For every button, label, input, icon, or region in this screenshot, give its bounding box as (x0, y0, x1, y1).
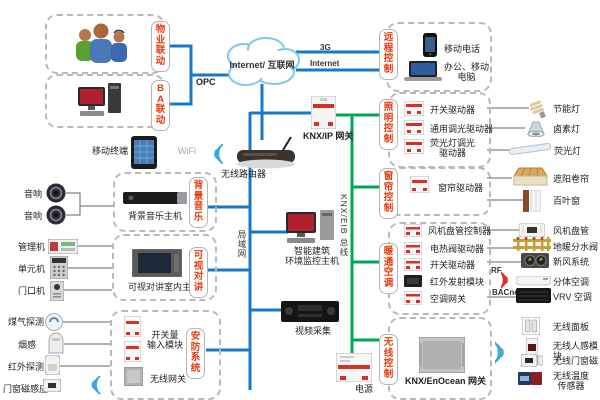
power-supply-icon (336, 353, 372, 382)
intercom-tag: 可视对讲 (189, 247, 208, 298)
curtain-actuator-icon (410, 176, 429, 193)
wireless-temp-sensor-label: 无线温度 传感器 (553, 371, 589, 392)
hvac-control-tag: 暖通空调 (379, 243, 398, 294)
security-tag: 安防系统 (186, 328, 205, 379)
ir-emitter-label: 红外发射模块 (430, 277, 484, 287)
remote-control-tag: 远程控制 (379, 29, 398, 80)
lan-label: 局域网 (236, 230, 248, 259)
computer-icon (78, 81, 126, 119)
intercom-host-icon (132, 249, 182, 277)
knx-system-diagram: 物业联动 BA联动 OPC Internet/ 互联网 3G Internet … (0, 0, 600, 400)
fluorescent-dimmer-label: 荧光灯调光 驱动器 (430, 138, 475, 159)
vrv-ac-label: VRV 空调 (553, 292, 592, 302)
video-capture-label: 视频采集 (295, 326, 331, 336)
property-linkage-tag: 物业联动 (151, 21, 170, 72)
manager-unit-label: 管理机 (18, 242, 45, 252)
wireless-door-magnet-label: 无线门窗磁 (553, 356, 598, 366)
manager-unit-icon (48, 239, 78, 254)
speaker-icon (46, 205, 66, 225)
blind-label: 百叶窗 (553, 196, 580, 206)
halogen-lamp-icon (526, 120, 546, 137)
wireless-control-tag: 无线控制 (379, 334, 398, 385)
mobile-phone-icon (423, 33, 437, 57)
fluorescent-dimmer-icon (404, 139, 424, 154)
speaker-b-label: 音响 (24, 211, 42, 221)
awning-icon (512, 166, 549, 188)
halogen-lamp-label: 卤素灯 (553, 124, 580, 134)
speaker-icon (46, 183, 66, 203)
knx-ip-gateway-label: KNX/IP 网关 (303, 131, 353, 141)
people-icon (72, 22, 128, 64)
smoke-detector-label: 烟感 (18, 340, 36, 350)
wireless-panel-label: 无线面板 (553, 322, 589, 332)
valve-actuator-label: 电热阀驱动器 (430, 244, 484, 254)
monitoring-host-icon (286, 210, 338, 246)
wireless-gateway-label: 无线网关 (150, 374, 186, 384)
ac-gateway-icon (404, 291, 422, 305)
split-ac-icon (516, 276, 551, 286)
monitoring-host-label: 智能建筑 环境监控主机 (283, 246, 341, 267)
valve-actuator-icon (404, 242, 422, 255)
door-magnet-label: 门窗磁感应 (3, 384, 48, 394)
switch-actuator-label: 开关驱动器 (430, 105, 475, 115)
input-module-label: 开关量 输入模块 (147, 330, 183, 351)
blind-icon (523, 190, 541, 212)
input-module-icon (124, 341, 141, 362)
wireless-gateway-icon (124, 367, 143, 386)
wireless-router-label: 无线路由器 (221, 169, 266, 179)
energy-saving-lamp-label: 节能灯 (553, 104, 580, 114)
door-station-icon (50, 281, 64, 301)
energy-saving-lamp-icon (529, 100, 547, 119)
split-ac-label: 分体空调 (553, 277, 589, 287)
manifold-icon (513, 237, 551, 252)
dimmer-actuator-label: 通用调光驱动器 (430, 124, 493, 134)
ac-gateway-label: 空调网关 (430, 294, 466, 304)
wireless-temp-sensor-icon (518, 372, 542, 385)
wifi-label: WiFi (178, 146, 196, 156)
gas-detector-icon (45, 313, 63, 331)
mobile-phone-label: 移动电话 (444, 44, 480, 54)
fan-coil-label: 风机盘管 (553, 226, 589, 236)
3g-label: 3G (320, 43, 331, 52)
fan-coil-icon (519, 223, 545, 237)
video-capture-icon (281, 301, 339, 322)
wifi-signal-icon (83, 376, 101, 394)
enocean-gateway-label: KNX/EnOcean 网关 (405, 376, 486, 386)
wireless-router-icon (237, 136, 299, 170)
lighting-control-tag: 照明控制 (379, 99, 398, 150)
fcu-controller-label: 风机盘管控制器 (428, 226, 491, 236)
fcu-controller-icon (404, 224, 422, 237)
wifi-signal-icon (203, 144, 223, 164)
switch-actuator-icon (404, 101, 424, 116)
door-station-label: 门口机 (18, 286, 45, 296)
power-supply-label: 电源 (355, 384, 373, 394)
knx-ip-gateway-icon (311, 96, 336, 129)
switch-actuator2-label: 开关驱动器 (430, 260, 475, 270)
ir-emitter-icon (404, 275, 422, 287)
fresh-air-label: 新风系统 (553, 257, 589, 267)
infrared-detector-label: 红外探测 (8, 362, 44, 372)
fluorescent-lamp-label: 荧光灯 (554, 146, 581, 156)
cloud-label: Internet/ 互联网 (219, 58, 305, 71)
unit-machine-label: 单元机 (18, 264, 45, 274)
speaker-a-label: 音响 (24, 189, 42, 199)
switch-actuator2-icon (404, 258, 422, 271)
bgm-tag: 背景音乐 (189, 177, 208, 228)
tablet-icon (131, 136, 157, 169)
wifi-signal-icon (495, 340, 515, 364)
fresh-air-icon (521, 251, 549, 270)
fluorescent-tube-icon (508, 141, 552, 157)
wireless-panel-icon (522, 317, 540, 335)
awning-label: 遮阳卷帘 (553, 174, 589, 184)
infrared-detector-icon (45, 355, 60, 375)
laptop-icon (404, 61, 442, 83)
mobile-terminal-label: 移动终端 (92, 146, 128, 156)
wireless-door-magnet-icon (521, 354, 543, 367)
internet-label: Internet (310, 59, 339, 68)
vrv-ac-icon (516, 288, 551, 304)
enocean-gateway-icon (419, 337, 465, 373)
input-module-icon (124, 316, 141, 337)
bgm-host-label: 背景音乐主机 (128, 211, 182, 221)
manifold-label: 地暖分水阀 (553, 242, 598, 252)
opc-label: OPC (196, 77, 216, 87)
door-magnet-icon (43, 379, 61, 392)
bgm-host-icon (123, 190, 187, 206)
ba-linkage-tag: BA联动 (151, 80, 170, 131)
dimmer-actuator-icon (404, 120, 424, 135)
curtain-actuator-label: 窗帘驱动器 (438, 183, 483, 193)
gas-detector-label: 煤气探测 (8, 317, 44, 327)
curtain-control-tag: 窗帘控制 (379, 168, 398, 219)
office-pc-label: 办公、移动 电脑 (444, 62, 489, 83)
smoke-detector-icon (48, 332, 64, 354)
unit-machine-icon (50, 256, 68, 279)
